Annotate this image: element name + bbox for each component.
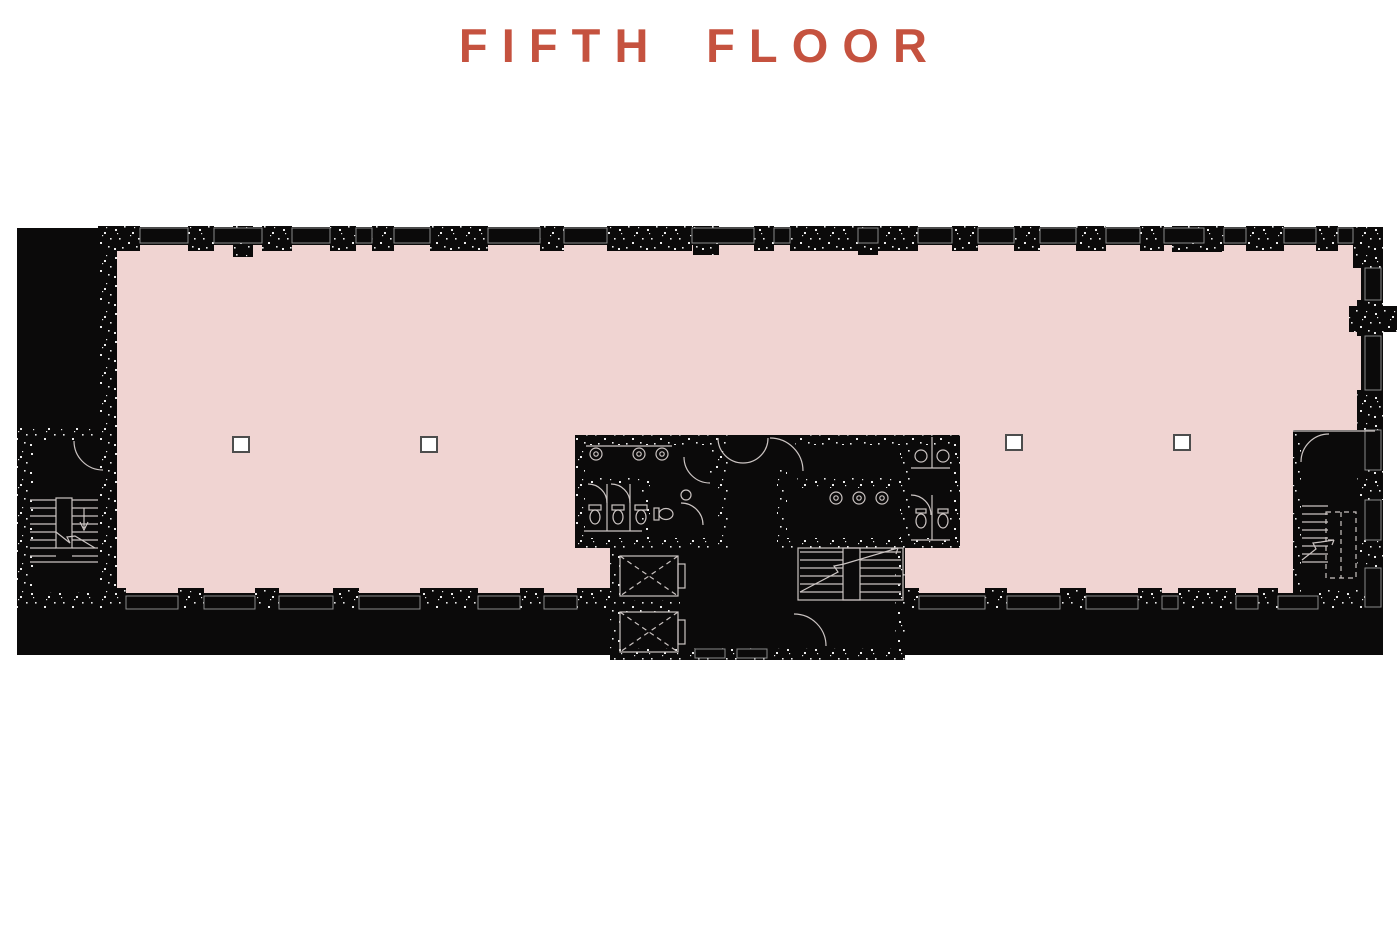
page: { "title": { "text": "FIFTH FLOOR" }, "t… <box>0 0 1400 935</box>
column <box>1006 435 1022 450</box>
floor-plan <box>0 0 1400 935</box>
column <box>233 437 249 452</box>
column <box>421 437 437 452</box>
column <box>1174 435 1190 450</box>
